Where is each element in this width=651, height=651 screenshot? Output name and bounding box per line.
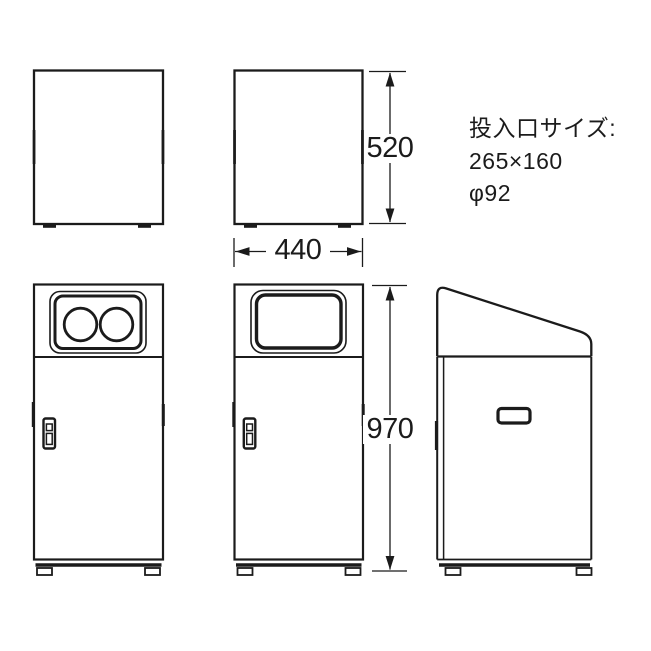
arrow-up-icon — [386, 287, 395, 301]
hinge-mark-left — [32, 402, 35, 427]
rear-view-left — [33, 71, 165, 228]
sloped-lid-profile — [437, 288, 591, 356]
foot-left — [446, 568, 461, 575]
foot-right — [138, 224, 151, 227]
edge-mark-left — [233, 130, 236, 164]
dimension-label-upper-height: 520 — [364, 134, 416, 163]
foot-right — [577, 568, 592, 575]
dimension-label-width: 440 — [266, 236, 330, 265]
arrow-up-icon — [386, 73, 395, 87]
foot-right — [346, 568, 361, 575]
foot-right — [145, 568, 160, 575]
edge-mark-left — [33, 130, 36, 164]
hinge-mark-left — [435, 421, 438, 450]
edge-mark-right — [162, 130, 165, 164]
drawing-svg — [0, 0, 651, 651]
foot-right — [338, 224, 351, 227]
front-view-ashtray — [32, 285, 165, 576]
arrow-down-icon — [386, 209, 395, 223]
inlet-size-round: φ92 — [469, 177, 616, 210]
front-view-inlet — [232, 285, 364, 576]
side-handle-plate — [498, 409, 530, 424]
inlet-size-note: 投入口サイズ: 265×160 φ92 — [469, 112, 616, 210]
inlet-opening-inner — [257, 295, 342, 348]
arrow-right-icon — [347, 247, 361, 256]
foot-left — [37, 568, 52, 575]
foot-left — [244, 224, 257, 227]
arrow-left-icon — [236, 247, 250, 256]
cabinet-outline — [34, 71, 163, 225]
rear-view-dimensioned — [233, 71, 364, 228]
round-opening-right — [100, 308, 133, 341]
hinge-mark-left — [232, 402, 235, 427]
inlet-size-title: 投入口サイズ: — [469, 112, 616, 145]
inlet-size-rectangular: 265×160 — [469, 145, 616, 178]
foot-left — [43, 224, 56, 227]
cabinet-outline — [235, 71, 363, 225]
hinge-mark-right — [162, 404, 165, 426]
technical-drawing: 520 440 970 投入口サイズ: 265×160 φ92 — [0, 0, 651, 651]
arrow-down-icon — [386, 556, 395, 570]
foot-left — [238, 568, 253, 575]
round-opening-left — [64, 308, 97, 341]
dimension-label-total-height: 970 — [363, 415, 417, 444]
side-view — [435, 288, 592, 575]
